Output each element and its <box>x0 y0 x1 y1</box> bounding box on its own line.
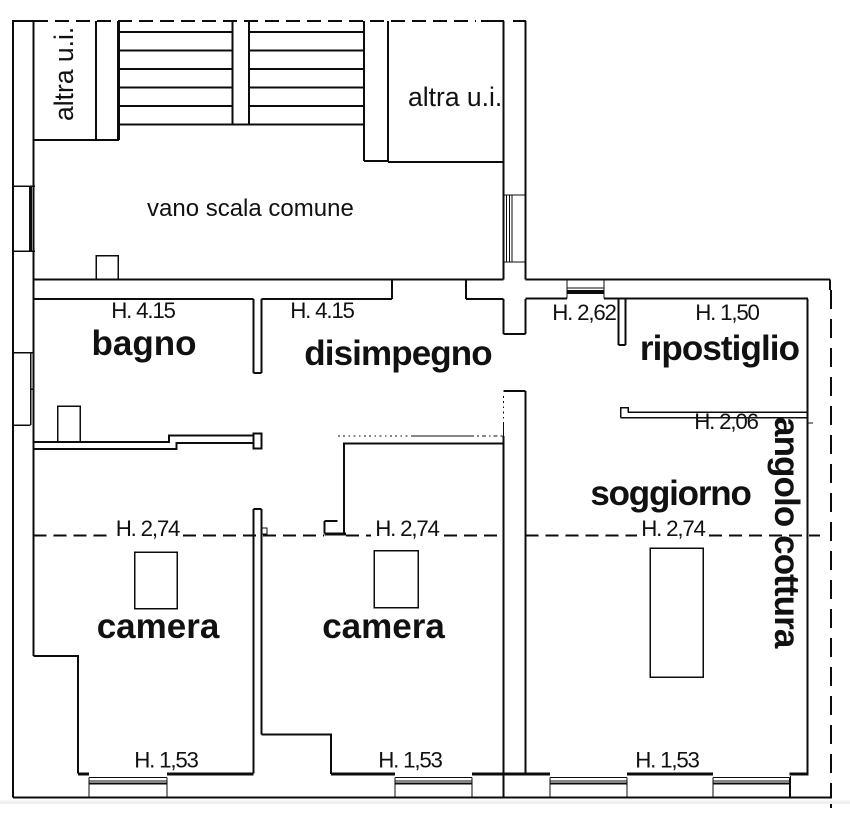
svg-text:vano scala comune: vano scala comune <box>147 195 354 222</box>
svg-text:H. 4.15: H. 4.15 <box>290 298 354 323</box>
svg-text:H. 1,53: H. 1,53 <box>635 748 699 773</box>
svg-text:ripostiglio: ripostiglio <box>640 329 800 368</box>
svg-text:soggiorno: soggiorno <box>590 474 751 513</box>
svg-text:H. 1,53: H. 1,53 <box>378 748 442 773</box>
svg-text:camera: camera <box>97 607 220 646</box>
svg-text:altra u.i.: altra u.i. <box>49 27 79 121</box>
svg-text:H. 1,53: H. 1,53 <box>134 748 198 773</box>
svg-text:H. 2,06: H. 2,06 <box>694 409 758 434</box>
svg-text:H. 2,62: H. 2,62 <box>552 300 616 325</box>
svg-text:H. 2,74: H. 2,74 <box>375 516 439 541</box>
svg-text:camera: camera <box>322 607 445 646</box>
svg-text:H. 2,74: H. 2,74 <box>116 516 180 541</box>
svg-text:angolo cottura: angolo cottura <box>767 417 806 649</box>
svg-text:disimpegno: disimpegno <box>304 334 492 373</box>
svg-text:bagno: bagno <box>92 324 197 363</box>
svg-text:altra u.i.: altra u.i. <box>408 82 502 112</box>
svg-text:H. 4.15: H. 4.15 <box>111 298 175 323</box>
svg-text:H. 1,50: H. 1,50 <box>695 300 759 325</box>
svg-text:H. 2,74: H. 2,74 <box>641 516 705 541</box>
